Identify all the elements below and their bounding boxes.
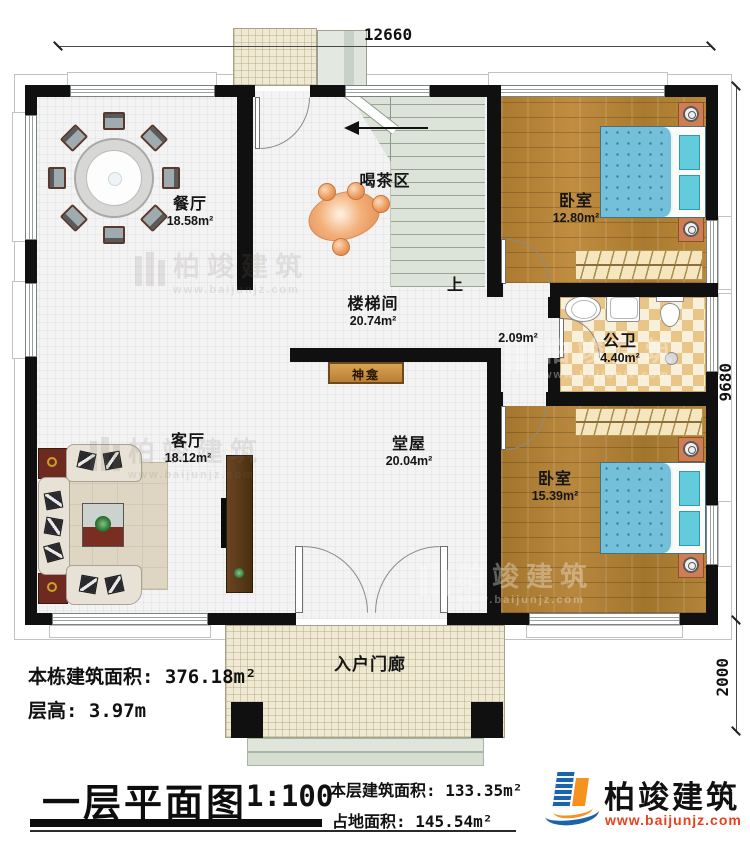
stair-arrow-head	[344, 121, 359, 135]
washing-machine-drum	[610, 297, 638, 319]
side-table-medallion	[47, 582, 57, 592]
sofa-pillow	[79, 575, 99, 595]
total-area-line: 本栋建筑面积: 376.18m²	[28, 662, 256, 689]
room-label-tea: 喝茶区	[343, 173, 427, 191]
entry-porch	[225, 625, 505, 738]
porch-step	[247, 738, 484, 752]
room-name: 客厅	[138, 433, 238, 451]
porch-step	[247, 752, 484, 766]
room-label-stairwell: 楼梯间 20.74m²	[323, 296, 423, 329]
nightstand	[678, 102, 704, 127]
window	[345, 85, 430, 97]
room-label-bedroom1: 卧室 12.80m²	[526, 193, 626, 226]
dining-table-center	[108, 172, 122, 186]
room-area: 20.04m²	[359, 454, 459, 468]
bed-pillow	[679, 175, 700, 210]
tea-stool	[318, 183, 336, 201]
wall	[25, 85, 37, 115]
room-area: 15.39m²	[505, 489, 605, 503]
window-trim	[49, 625, 211, 638]
window	[70, 85, 215, 97]
brand-url: www.baijunjz.com	[605, 812, 742, 828]
wall	[290, 348, 501, 362]
tv	[221, 498, 226, 548]
dining-chair	[103, 226, 125, 244]
window-trim	[12, 281, 26, 359]
wall	[548, 297, 560, 318]
wall	[550, 283, 718, 297]
bed	[600, 462, 706, 554]
room-label-porch: 入户门廊	[315, 655, 425, 675]
room-name: 入户门廊	[315, 655, 425, 675]
floor-height-value: 3.97m	[89, 700, 146, 722]
room-label-living: 客厅 18.12m²	[138, 433, 238, 466]
dim-porch-label: 2000	[714, 646, 732, 708]
room-area: 12.80m²	[526, 211, 626, 225]
wall	[25, 240, 37, 283]
sofa-pillow	[44, 517, 64, 537]
shrine-label: 神龛	[330, 366, 402, 383]
land-area-line: 占地面积: 145.54m²	[332, 808, 492, 832]
wall	[487, 283, 503, 297]
room-name: 餐厅	[140, 196, 240, 214]
land-area-label: 占地面积:	[332, 812, 415, 831]
bed-pillow	[679, 511, 700, 546]
entry-door-left-leaf	[295, 546, 303, 613]
sofa-pillow	[103, 451, 123, 471]
dim-porch-line	[736, 622, 737, 733]
wall	[208, 613, 296, 625]
floor-plan-canvas: 神龛	[0, 0, 750, 843]
window-trim	[718, 501, 732, 567]
window	[706, 505, 718, 565]
dining-chair	[162, 167, 180, 189]
room-name: 楼梯间	[323, 296, 423, 314]
room-name: 喝茶区	[343, 173, 427, 191]
wall	[487, 85, 501, 283]
room-area: 18.58m²	[140, 214, 240, 228]
sink-bowl	[571, 300, 597, 319]
wall	[237, 85, 253, 290]
window	[25, 283, 37, 357]
nightstand	[678, 217, 704, 242]
floor-area-line: 本层建筑面积: 133.35m²	[330, 777, 522, 801]
wall	[487, 348, 501, 613]
porch-column	[231, 702, 263, 738]
dining-chair	[48, 167, 66, 189]
nightstand	[678, 437, 704, 462]
coffee-table-plant	[95, 516, 111, 532]
wall	[430, 85, 490, 97]
window	[529, 613, 680, 625]
dim-right-label: 9680	[717, 351, 735, 413]
plan-scale: 1:100	[246, 779, 333, 813]
window	[25, 115, 37, 240]
window-trim	[67, 72, 217, 86]
total-area-label: 本栋建筑面积:	[28, 666, 165, 688]
window-trim	[12, 112, 26, 242]
porch-column	[471, 702, 503, 738]
wall	[680, 613, 718, 625]
brand-name: 柏竣建筑	[604, 772, 740, 817]
room-name: 堂屋	[359, 436, 459, 454]
cabinet-plant	[234, 568, 244, 578]
room-label-bathroom: 公卫 4.40m²	[570, 333, 670, 366]
dim-right-line	[736, 87, 737, 622]
tea-stool	[332, 238, 350, 256]
stair-up-label: 上	[440, 277, 470, 295]
bed-pillow	[679, 471, 700, 506]
window	[490, 85, 665, 97]
wardrobe	[575, 250, 703, 280]
window-trim	[526, 625, 683, 638]
corridor-area-label: 2.09m²	[488, 331, 548, 345]
room-area: 20.74m²	[323, 314, 423, 328]
bed-blanket	[601, 463, 673, 553]
wardrobe	[575, 408, 703, 436]
stair-arrow	[358, 127, 428, 129]
floor-area-label: 本层建筑面积:	[330, 781, 445, 800]
window	[706, 220, 718, 288]
title-underline-thick	[30, 819, 322, 827]
wall	[447, 613, 529, 625]
window-trim	[488, 72, 668, 86]
sofa-pillow	[76, 450, 96, 470]
room-area: 4.40m²	[570, 351, 670, 365]
room-name: 卧室	[505, 471, 605, 489]
dining-chair	[103, 112, 125, 130]
side-table-medallion	[47, 457, 57, 467]
sofa-pillow	[104, 574, 124, 594]
shrine-cabinet: 神龛	[328, 362, 404, 384]
wall	[548, 358, 560, 392]
wall	[706, 85, 718, 220]
floor-area-value: 133.35m²	[445, 781, 522, 800]
tea-stool	[372, 195, 390, 213]
wall	[25, 357, 37, 625]
nightstand	[678, 553, 704, 578]
window-trim	[718, 216, 732, 290]
nightstand-lamp	[683, 221, 699, 237]
brand-logo	[545, 768, 601, 832]
land-area-value: 145.54m²	[415, 812, 492, 831]
floor-height-line: 层高: 3.97m	[28, 696, 146, 723]
room-name: 公卫	[570, 333, 670, 351]
wall	[546, 392, 718, 406]
window	[52, 613, 208, 625]
bed-pillow	[679, 135, 700, 170]
sofa-bottom-section	[66, 565, 142, 605]
total-area-value: 376.18m²	[165, 666, 257, 688]
nightstand-lamp	[683, 557, 699, 573]
dim-top-label: 12660	[348, 26, 428, 44]
sofa-pillow	[44, 491, 64, 511]
room-label-dining: 餐厅 18.58m²	[140, 196, 240, 229]
dim-top-line	[57, 46, 712, 47]
room-area: 18.12m²	[138, 451, 238, 465]
room-label-bedroom2: 卧室 15.39m²	[505, 471, 605, 504]
entry-door-right-leaf	[440, 546, 448, 613]
nightstand-lamp	[683, 441, 699, 457]
room-label-hall: 堂屋 20.04m²	[359, 436, 459, 469]
wall	[310, 85, 345, 97]
floor-height-label: 层高:	[28, 700, 89, 722]
wall	[25, 613, 52, 625]
room-name: 卧室	[526, 193, 626, 211]
back-porch	[233, 28, 317, 86]
nightstand-lamp	[683, 106, 699, 122]
